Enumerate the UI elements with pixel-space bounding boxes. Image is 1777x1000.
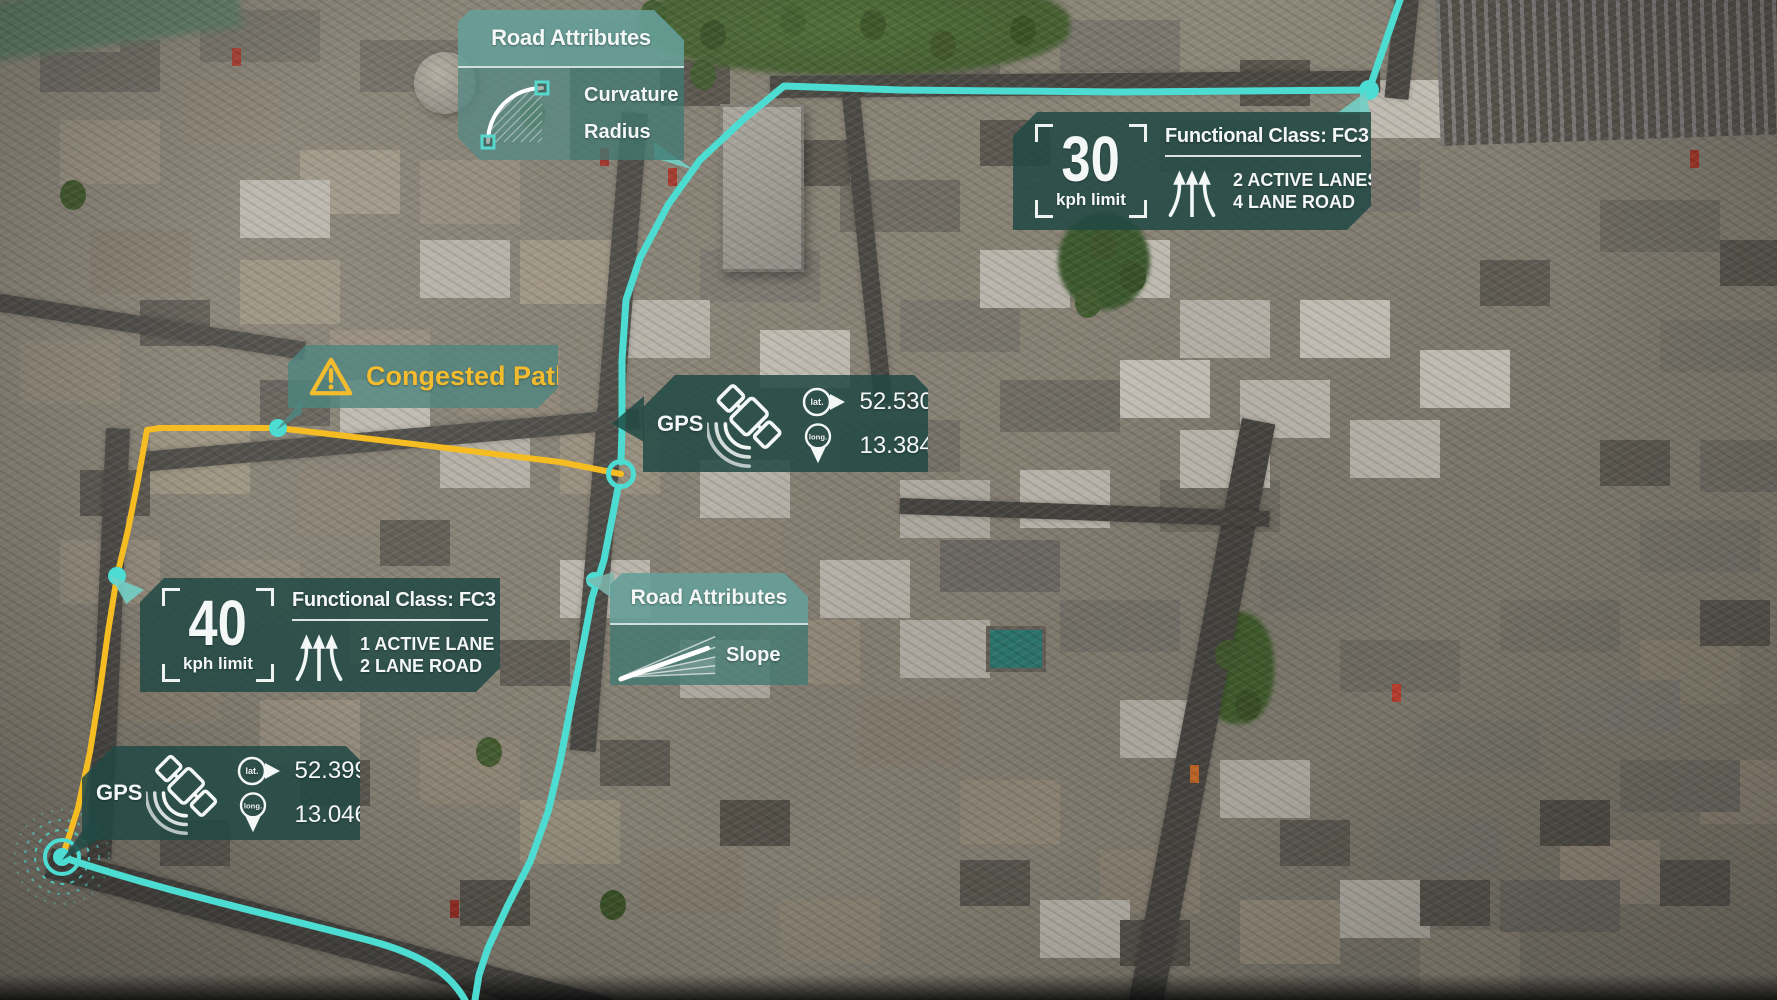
- panel-body: Slope: [610, 625, 808, 685]
- divider: [292, 619, 488, 621]
- satellite-icon: [146, 751, 230, 835]
- speed-limit-value: 40: [189, 596, 247, 650]
- road-attributes-panel-slope: Road Attributes Slope: [610, 573, 808, 685]
- aerial-photo-background: [0, 0, 1777, 1000]
- panel-header: Road Attributes: [458, 10, 684, 68]
- active-lanes-text: 1 ACTIVE LANE: [360, 633, 494, 656]
- longitude-icon-label: long.: [809, 432, 827, 441]
- panel-title: Road Attributes: [631, 586, 788, 610]
- lane-road-text: 4 LANE ROAD: [1233, 191, 1379, 214]
- lane-road-text: 2 LANE ROAD: [360, 655, 494, 678]
- latitude-icon: lat.: [236, 754, 286, 788]
- divider: [1165, 155, 1361, 157]
- active-lanes-text: 2 ACTIVE LANES: [1233, 169, 1379, 192]
- gps-label: GPS: [96, 780, 142, 806]
- curvature-arc-icon: [458, 68, 570, 160]
- gps-label: GPS: [657, 411, 703, 437]
- latitude-icon-label: lat.: [811, 397, 824, 407]
- congested-path-text: Congested Path: [366, 361, 572, 392]
- gps-panel-bottom: GPS lat.: [82, 746, 360, 840]
- vignette: [0, 0, 1777, 1000]
- attribute-label-slope: Slope: [726, 644, 780, 667]
- latitude-icon: lat.: [801, 385, 851, 419]
- lane-arrows-icon: [292, 629, 346, 681]
- warning-triangle-icon: [308, 356, 354, 398]
- slope-fan-icon: [610, 627, 726, 683]
- functional-class-title: Functional Class: FC3: [1165, 125, 1379, 148]
- longitude-icon: long.: [236, 792, 286, 838]
- functional-class-title: Functional Class: FC3: [292, 589, 496, 612]
- congested-path-label: Congested Path: [288, 345, 558, 408]
- speed-limit-bracket: 40 kph limit: [162, 588, 274, 682]
- speed-limit-panel-40: 40 kph limit Functional Class: FC3: [140, 578, 500, 692]
- attribute-label-radius: Radius: [584, 121, 684, 144]
- satellite-icon: [707, 380, 795, 468]
- lane-arrows-icon: [1165, 165, 1219, 217]
- panel-body: Curvature Radius: [458, 68, 684, 160]
- panel-header: Road Attributes: [610, 573, 808, 625]
- longitude-icon: long.: [801, 423, 851, 469]
- latitude-icon-label: lat.: [246, 766, 259, 776]
- attribute-label-curvature: Curvature: [584, 84, 684, 107]
- speed-limit-value: 30: [1062, 132, 1120, 186]
- longitude-icon-label: long.: [244, 801, 262, 810]
- speed-limit-panel-30: 30 kph limit Functional Class: FC3: [1013, 112, 1371, 230]
- panel-title: Road Attributes: [491, 25, 651, 51]
- road-attributes-panel-top: Road Attributes Curvature Ra: [458, 10, 684, 160]
- gps-panel-center: GPS lat.: [643, 375, 928, 472]
- speed-limit-bracket: 30 kph limit: [1035, 124, 1147, 218]
- aerial-map-scene: Road Attributes Curvature Ra: [0, 0, 1777, 1000]
